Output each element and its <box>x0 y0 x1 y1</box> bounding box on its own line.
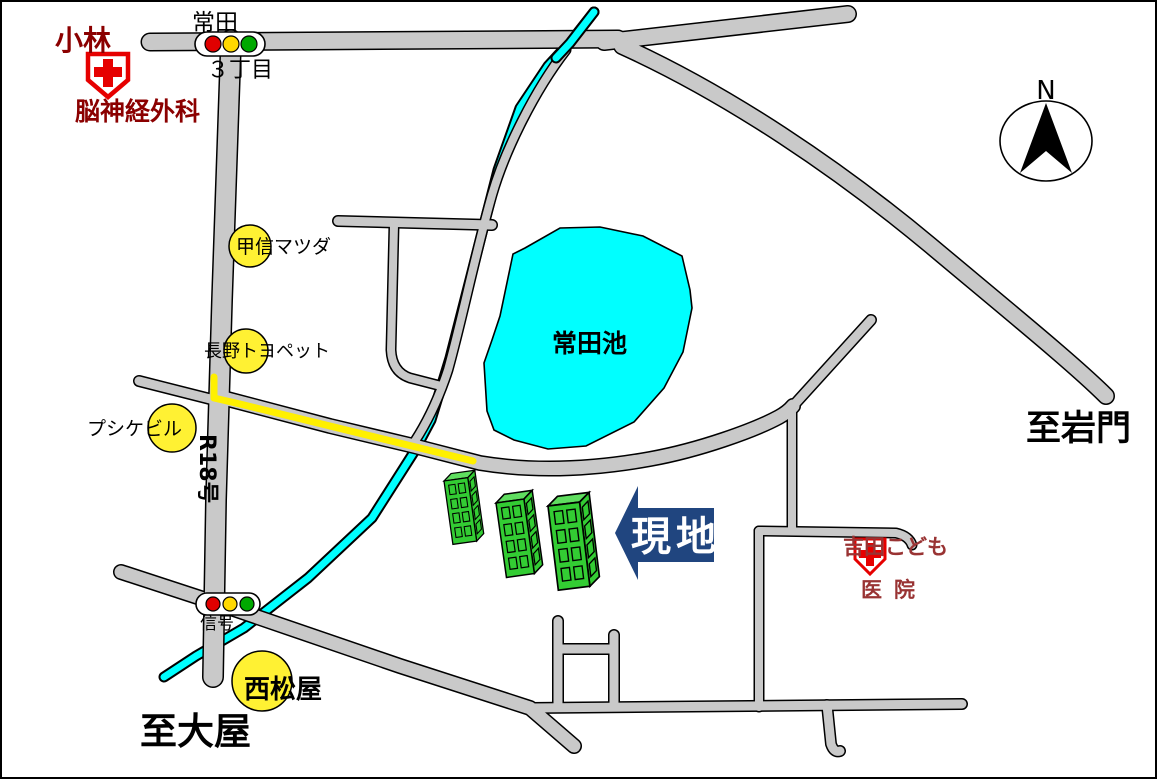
site-arrow-label: 現地 <box>631 514 721 560</box>
red-light-icon <box>205 36 221 52</box>
toyopet-label: 長野トヨペット <box>204 341 330 362</box>
green-light-icon <box>240 597 254 611</box>
pond-label: 常田池 <box>552 329 627 358</box>
nishimatsuya-label: 西松屋 <box>244 675 322 705</box>
to-oya-label: 至大屋 <box>140 710 251 753</box>
red-light-icon <box>206 597 220 611</box>
r18-label: R18号 <box>194 434 219 504</box>
traffic-light-south <box>196 593 260 615</box>
tokida-signal-label: 常田 <box>192 10 238 36</box>
kobayashi-name-label: 小林 <box>55 24 111 57</box>
yoshida-type-label: 医院 <box>861 578 927 602</box>
psyche-label: プシケビル <box>87 418 182 440</box>
kobayashi-dept-label: 脳神経外科 <box>75 97 200 126</box>
compass-north-label: N <box>1036 76 1055 106</box>
to-iwakado-label: 至岩門 <box>1026 409 1131 449</box>
access-map: 常田池 現 <box>0 0 1157 779</box>
map-canvas: 常田池 現 <box>0 0 1157 779</box>
mazda-label: 甲信マツダ <box>236 236 331 258</box>
green-light-icon <box>241 36 257 52</box>
chome-label: ３丁目 <box>207 58 273 83</box>
yoshida-name-label: 吉田こども <box>843 535 948 559</box>
signal-label: 信号 <box>200 614 234 634</box>
yellow-light-icon <box>223 36 239 52</box>
yellow-light-icon <box>223 597 237 611</box>
